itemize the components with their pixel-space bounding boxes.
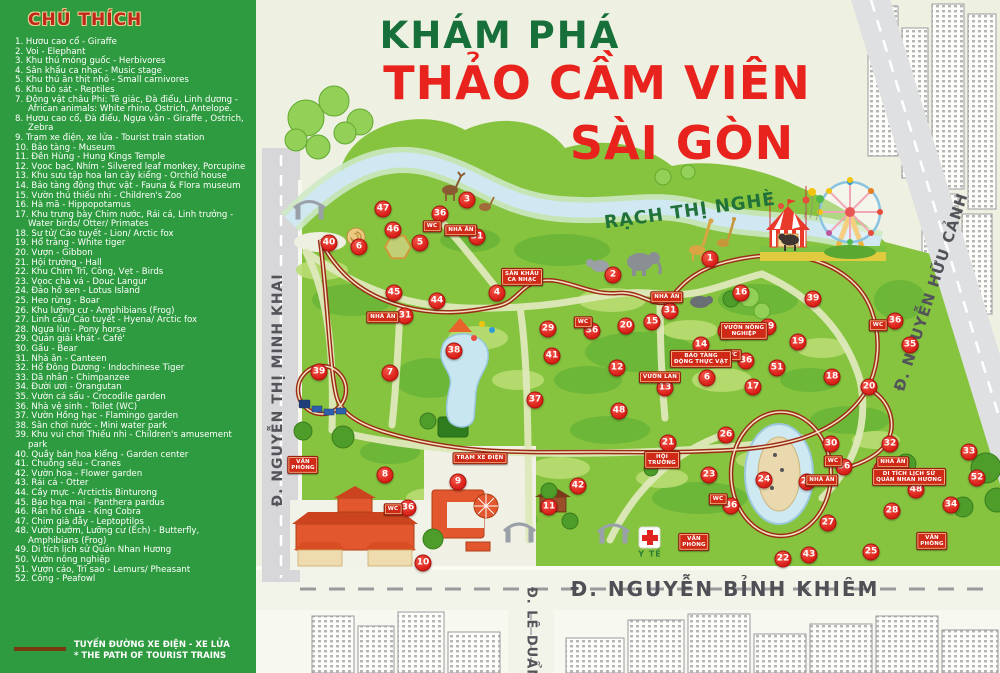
street-label-le-duan: Đ. LÊ DUẨN: [524, 587, 539, 673]
street-label-minh-khai: Đ. NGUYỄN THỊ MINH KHAI: [270, 273, 286, 506]
map-marker-44: 44: [429, 293, 446, 310]
legend-item: 48. Vườn bướm, Lưỡng cư (Ếch) - Butterfl…: [15, 527, 246, 546]
legend-list: 1. Hươu cao cổ - Giraffe2. Voi - Elephan…: [0, 38, 250, 585]
map-marker-35: 35: [902, 337, 919, 354]
map-sign: VĂN PHÒNG: [678, 533, 709, 551]
map-sign: NHÀ ĂN: [650, 291, 683, 303]
map-marker-6: 6: [351, 239, 368, 256]
map-marker-23: 23: [701, 467, 718, 484]
map-sign: WC: [709, 493, 728, 505]
map-sign: WC: [574, 316, 593, 328]
map-marker-15: 15: [644, 314, 661, 331]
map-marker-6: 6: [699, 370, 716, 387]
poster-title-line1: KHÁM PHÁ: [380, 14, 621, 57]
animal-pen: [385, 236, 411, 259]
map-sign: SÂN KHẤU CA NHẠC: [501, 268, 543, 286]
legend-footer-line1: TUYẾN ĐƯỜNG XE ĐIỆN - XE LỬA: [74, 640, 230, 651]
legend-footer-line2: * THE PATH OF TOURIST TRAINS: [74, 651, 230, 662]
map-marker-18: 18: [824, 369, 841, 386]
map-marker-36: 36: [887, 313, 904, 330]
map-marker-46: 46: [385, 222, 402, 239]
map-sign: TRẠM XE ĐIỆN: [453, 452, 508, 464]
map-sign: WC: [384, 503, 403, 515]
street-label-binh-khiem: Đ. NGUYỄN BỈNH KHIÊM: [571, 577, 880, 601]
medical-cross-icon: [639, 527, 660, 548]
map-marker-19: 19: [790, 334, 807, 351]
map-marker-41: 41: [544, 348, 561, 365]
map-sign: VƯỜN NÔNG NGHIỆP: [720, 322, 768, 340]
map-marker-47: 47: [375, 201, 392, 218]
map-marker-1: 1: [702, 251, 719, 268]
map-marker-26: 26: [718, 427, 735, 444]
map-marker-33: 33: [961, 444, 978, 461]
map-marker-9: 9: [450, 474, 467, 491]
legend-footer: TUYẾN ĐƯỜNG XE ĐIỆN - XE LỬA * THE PATH …: [14, 640, 230, 662]
legend-title: CHÚ THÍCH: [28, 10, 142, 30]
map-marker-5: 5: [412, 235, 429, 252]
map-marker-45: 45: [386, 285, 403, 302]
map-sign: VĂN PHÒNG: [916, 532, 947, 550]
map-marker-17: 17: [745, 379, 762, 396]
map-marker-32: 32: [882, 436, 899, 453]
map-marker-4: 4: [489, 285, 506, 302]
legend-item: 39. Khu vui chơi Thiếu nhi - Children's …: [15, 431, 246, 450]
legend-item: 7. Động vật châu Phi: Tê giác, Đà điểu, …: [15, 96, 246, 115]
map-marker-20: 20: [618, 318, 635, 335]
map-marker-3: 3: [459, 192, 476, 209]
map-sign: DI TÍCH LỊCH SỬ QUÁN NHAN HƯƠNG: [872, 468, 946, 486]
map-marker-25: 25: [863, 544, 880, 561]
map-sign: WC: [824, 455, 843, 467]
map-marker-37: 37: [527, 392, 544, 409]
map-sign: HỘI TRƯỜNG: [644, 451, 680, 469]
map-sign: NHÀ ĂN: [876, 456, 909, 468]
map-marker-28: 28: [884, 503, 901, 520]
map-sign: VƯỜN LAN: [639, 371, 681, 383]
map-sign: BẢO TÀNG ĐỘNG THỰC VẬT: [670, 350, 732, 368]
map-marker-27: 27: [820, 515, 837, 532]
map-marker-40: 40: [321, 235, 338, 252]
map-marker-48: 48: [611, 403, 628, 420]
train-path-line-swatch: [14, 647, 66, 651]
legend-item: 8. Hươu cao cổ, Đà điểu, Ngựa vằn - Gira…: [15, 115, 246, 134]
map-marker-24: 24: [756, 472, 773, 489]
map-sign: NHÀ ĂN: [366, 311, 399, 323]
map-marker-16: 16: [733, 285, 750, 302]
map-sign: WC: [423, 220, 442, 232]
map-marker-34: 34: [943, 497, 960, 514]
map-sign: NHÀ ĂN: [805, 474, 838, 486]
map-marker-2: 2: [605, 267, 622, 284]
map-marker-42: 42: [570, 478, 587, 495]
map-marker-22: 22: [775, 551, 792, 568]
map-marker-20: 20: [861, 379, 878, 396]
map-marker-43: 43: [801, 547, 818, 564]
map-marker-21: 21: [660, 435, 677, 452]
map-marker-39: 39: [311, 364, 328, 381]
map-marker-10: 10: [415, 555, 432, 572]
map-sign: VĂN PHÒNG: [287, 456, 318, 474]
legend-item: 17. Khu trưng bày Chim nước, Rái cá, Lin…: [15, 211, 246, 230]
map-sign: WC: [869, 319, 888, 331]
map-marker-38: 38: [446, 343, 463, 360]
poster-title-line3: SÀI GÒN: [570, 116, 794, 170]
poster-title-line2: THẢO CẦM VIÊN: [383, 56, 810, 110]
map-marker-39: 39: [805, 291, 822, 308]
map-marker-29: 29: [540, 321, 557, 338]
zoo-map-poster: CHÚ THÍCH 1. Hươu cao cổ - Giraffe2. Voi…: [0, 0, 1000, 673]
medical-label: Y TẾ: [638, 550, 662, 559]
legend-item: 52. Công - Peafowl: [15, 575, 246, 585]
map-marker-8: 8: [377, 467, 394, 484]
map-sign: NHÀ ĂN: [444, 224, 477, 236]
map-marker-31: 31: [662, 303, 679, 320]
legend-panel: CHÚ THÍCH 1. Hươu cao cổ - Giraffe2. Voi…: [0, 0, 256, 673]
map-marker-12: 12: [609, 360, 626, 377]
map-marker-51: 51: [769, 360, 786, 377]
map-marker-52: 52: [969, 470, 986, 487]
map-marker-7: 7: [382, 365, 399, 382]
map-marker-30: 30: [823, 436, 840, 453]
map-marker-11: 11: [541, 499, 558, 516]
city-buildings-bottom: [256, 608, 1000, 673]
